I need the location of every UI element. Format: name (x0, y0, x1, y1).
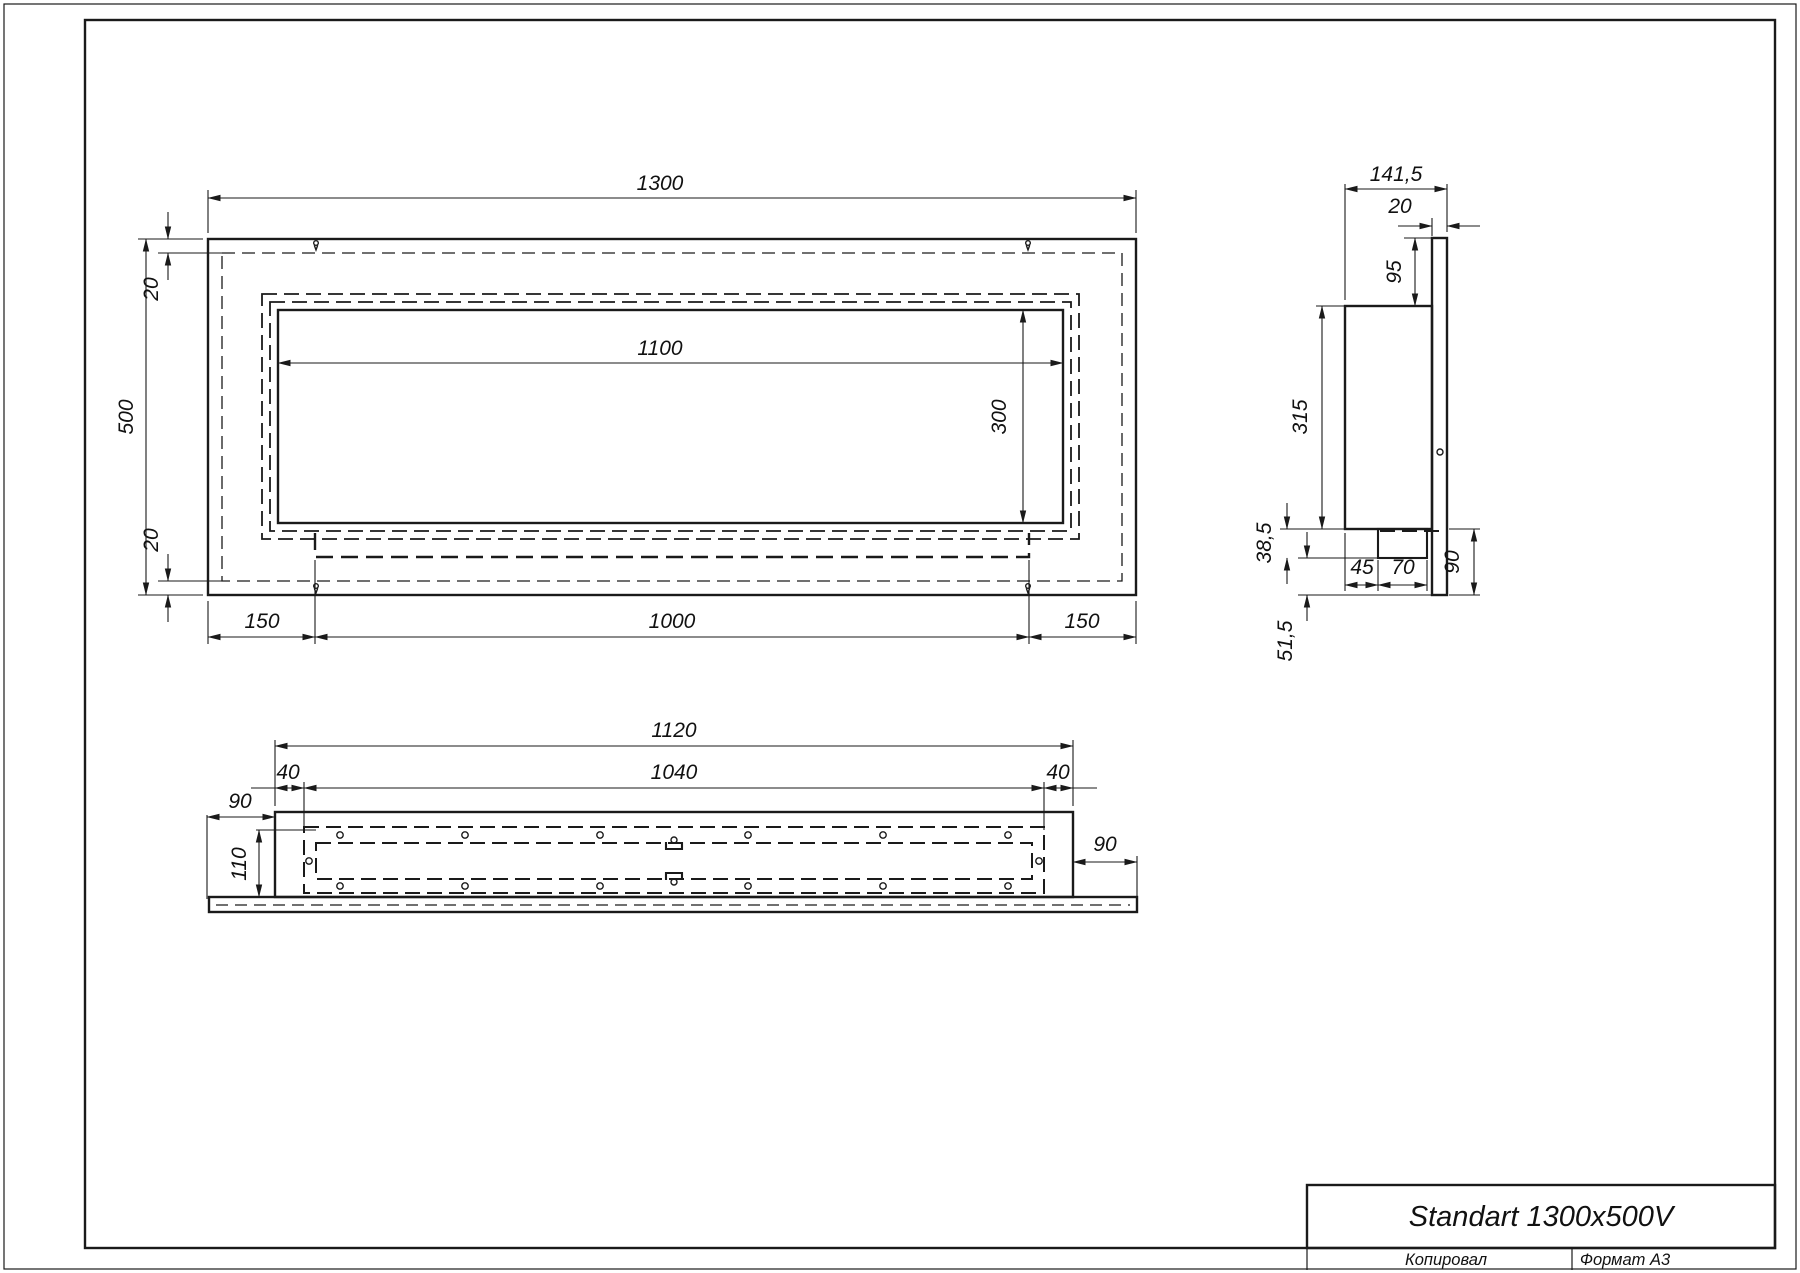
dim-front-opening-height: 300 (988, 399, 1011, 434)
side-body (1345, 306, 1432, 529)
dim-bottom-flange-left: 90 (228, 790, 252, 813)
screw-hole-icon (462, 832, 468, 838)
dim-side-top-offset: 95 (1383, 260, 1406, 284)
side-view: 141,5 20 95 315 38,5 51,5 45 70 (1253, 163, 1480, 661)
screw-hole-icon (880, 883, 886, 889)
dim-side-tray-depth: 70 (1391, 556, 1415, 579)
dim-bottom-margin-right: 40 (1046, 761, 1070, 784)
keyhole-slot-icon (1026, 241, 1031, 250)
screw-hole-icon (462, 883, 468, 889)
drawing-frame (85, 20, 1775, 1248)
copied-label: Копировал (1405, 1251, 1487, 1269)
keyhole-slot-icon (1026, 584, 1031, 593)
screw-hole-icon (880, 832, 886, 838)
flange-hole-icon (1437, 449, 1443, 455)
dim-front-tray-left: 150 (244, 610, 279, 633)
dim-side-tray-drop: 38,5 (1253, 522, 1276, 563)
keyhole-slot-icon (314, 241, 319, 250)
dim-bottom-body-width: 1120 (651, 719, 696, 742)
drawing-title: Standart 1300x500V (1409, 1201, 1676, 1233)
dim-front-tray-width: 1000 (649, 610, 696, 633)
bottom-view: 1120 40 1040 40 90 110 90 (207, 719, 1137, 912)
dim-front-width: 1300 (637, 172, 684, 195)
dim-side-body-height: 315 (1289, 399, 1312, 434)
keyhole-slot-icon (314, 584, 319, 593)
dim-front-inset-bottom: 20 (140, 528, 163, 553)
screw-hole-icon (745, 883, 751, 889)
dim-front-opening-width: 1100 (637, 337, 682, 360)
dim-front-height: 500 (115, 399, 138, 434)
screw-hole-icon (306, 858, 312, 864)
screw-hole-icon (597, 832, 603, 838)
screw-hole-icon (597, 883, 603, 889)
screw-hole-icon (1005, 883, 1011, 889)
dim-front-inset-top: 20 (140, 277, 163, 302)
screw-hole-icon (1005, 832, 1011, 838)
dim-bottom-margin-left: 40 (276, 761, 300, 784)
side-flange-plate (1432, 238, 1447, 595)
screw-hole-icon (337, 832, 343, 838)
dim-side-below-tray: 51,5 (1274, 620, 1297, 661)
dim-bottom-flange-right: 90 (1093, 833, 1117, 856)
title-block: Standart 1300x500V Копировал Формат А3 (1307, 1185, 1775, 1270)
dim-front-tray-right: 150 (1064, 610, 1099, 633)
dim-bottom-opening-width: 1040 (651, 761, 698, 784)
front-view: 1300 500 20 20 1100 300 150 1000 150 (115, 172, 1136, 644)
screw-hole-icon (745, 832, 751, 838)
dim-side-tray-setback: 45 (1350, 556, 1374, 579)
front-opening-hidden-2 (262, 294, 1079, 539)
side-tray (1378, 529, 1427, 558)
dim-side-flange-below: 90 (1441, 550, 1464, 574)
dim-bottom-body-depth: 110 (228, 847, 251, 881)
screw-hole-icon (337, 883, 343, 889)
format-label: Формат А3 (1580, 1251, 1671, 1269)
bottom-body (275, 812, 1073, 897)
dim-side-flange-thickness: 20 (1387, 195, 1412, 218)
technical-drawing: 1300 500 20 20 1100 300 150 1000 150 (0, 0, 1800, 1273)
screw-hole-icon (1036, 858, 1042, 864)
dim-side-depth: 141,5 (1370, 163, 1423, 186)
front-hidden-tray (315, 533, 1029, 557)
drawing-sheet: 1300 500 20 20 1100 300 150 1000 150 (0, 0, 1800, 1273)
